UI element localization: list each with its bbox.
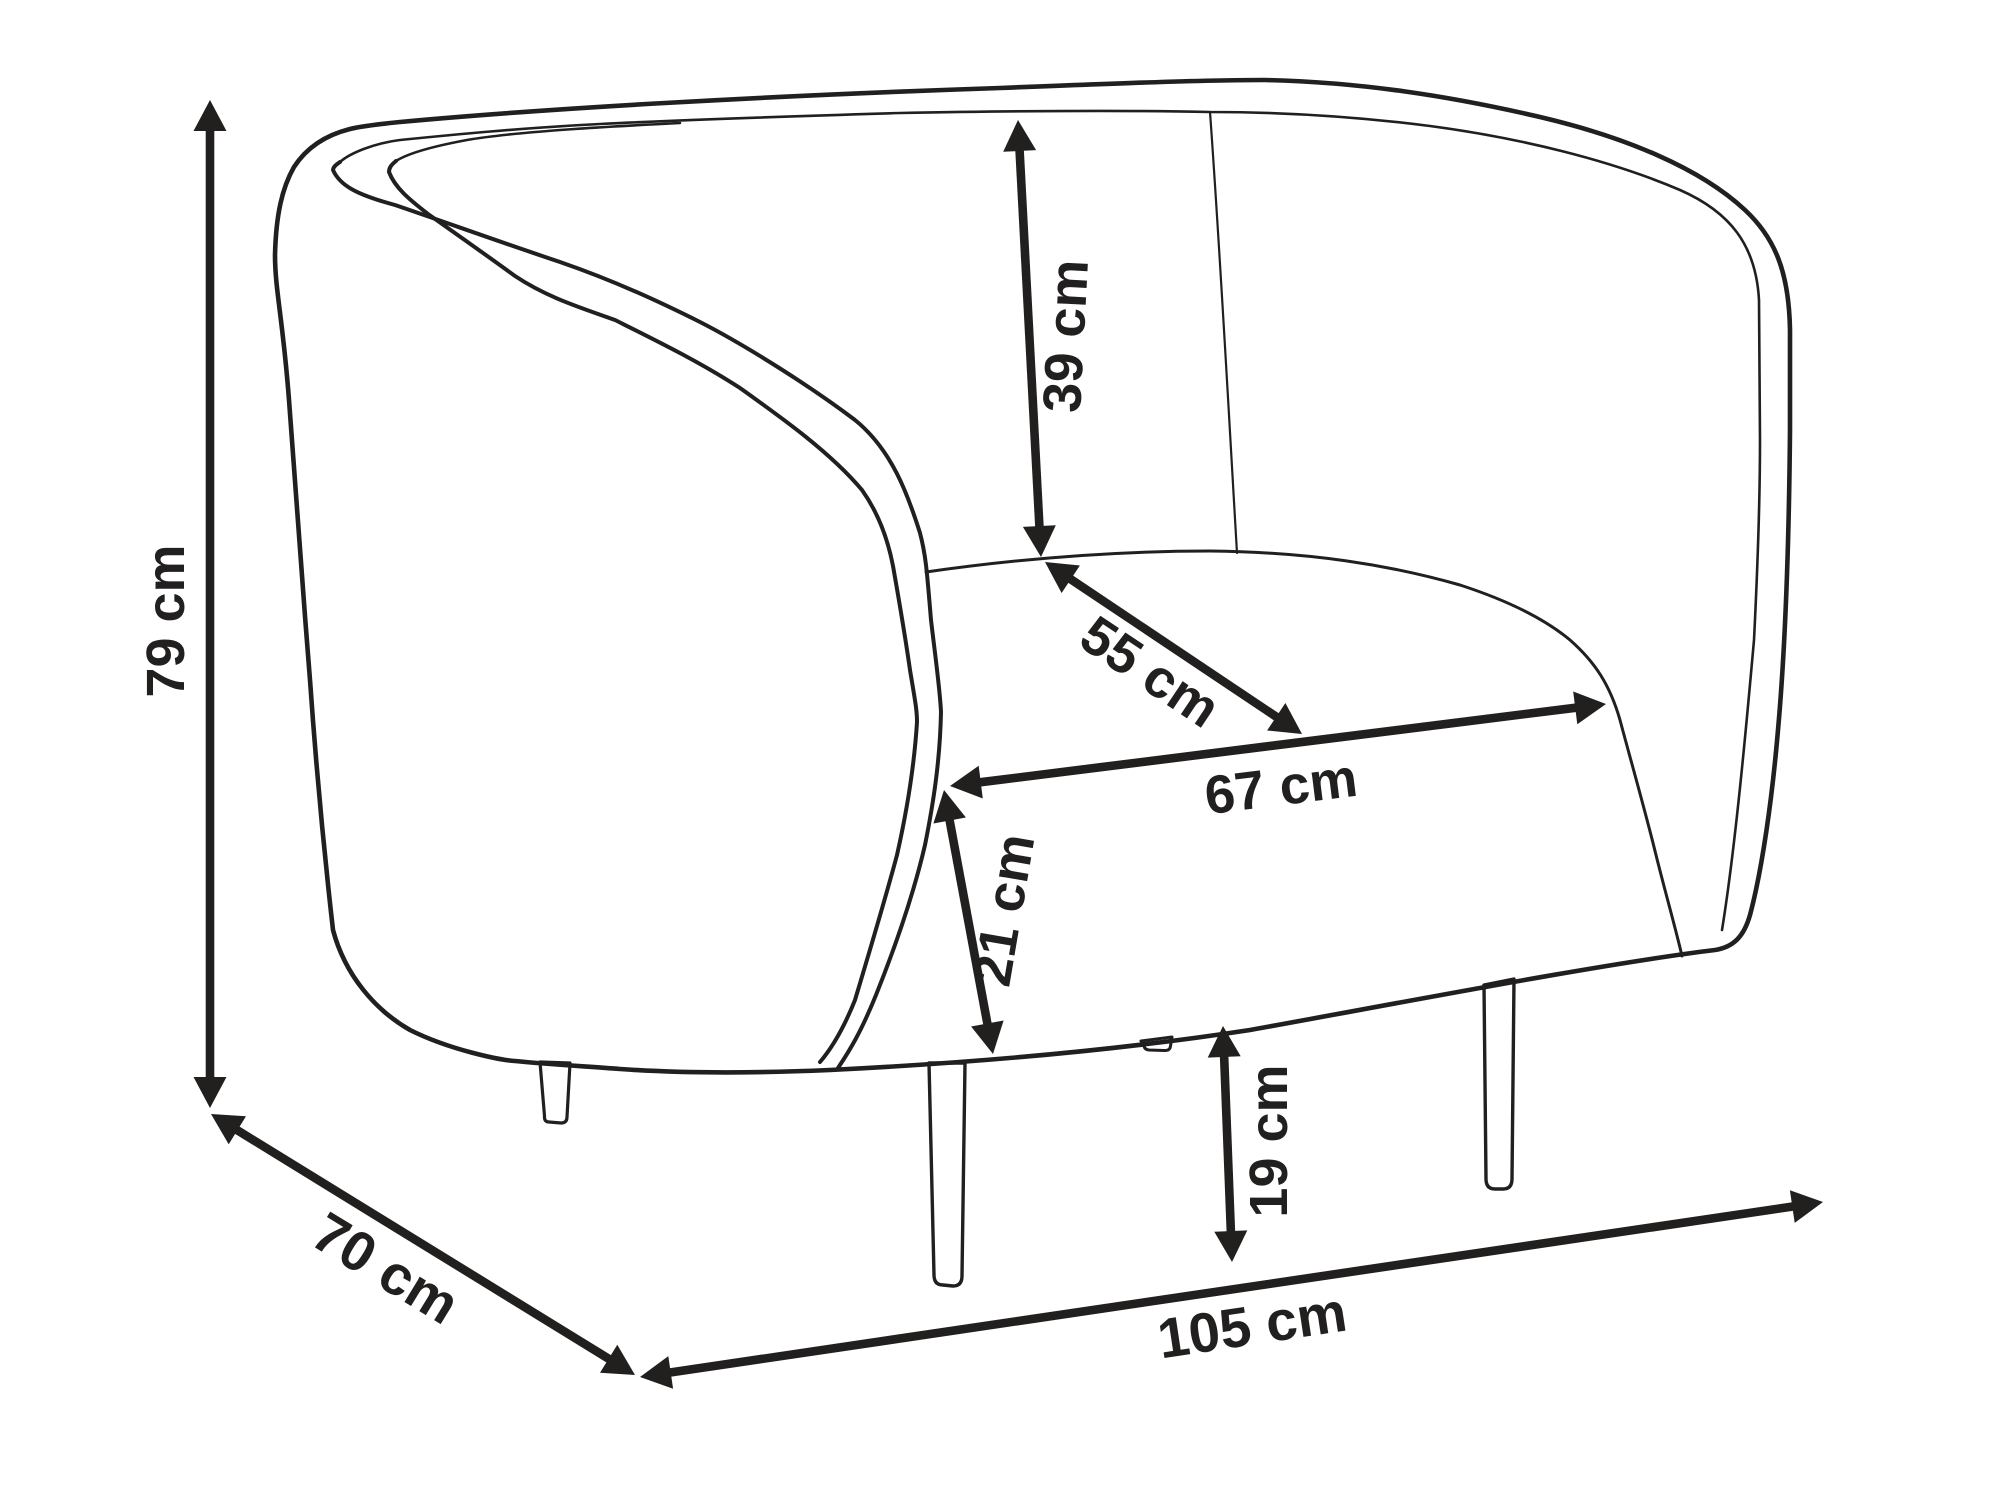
svg-text:79 cm: 79 cm [136,544,196,697]
svg-text:39 cm: 39 cm [1032,258,1100,414]
svg-text:19 cm: 19 cm [1239,1064,1299,1217]
